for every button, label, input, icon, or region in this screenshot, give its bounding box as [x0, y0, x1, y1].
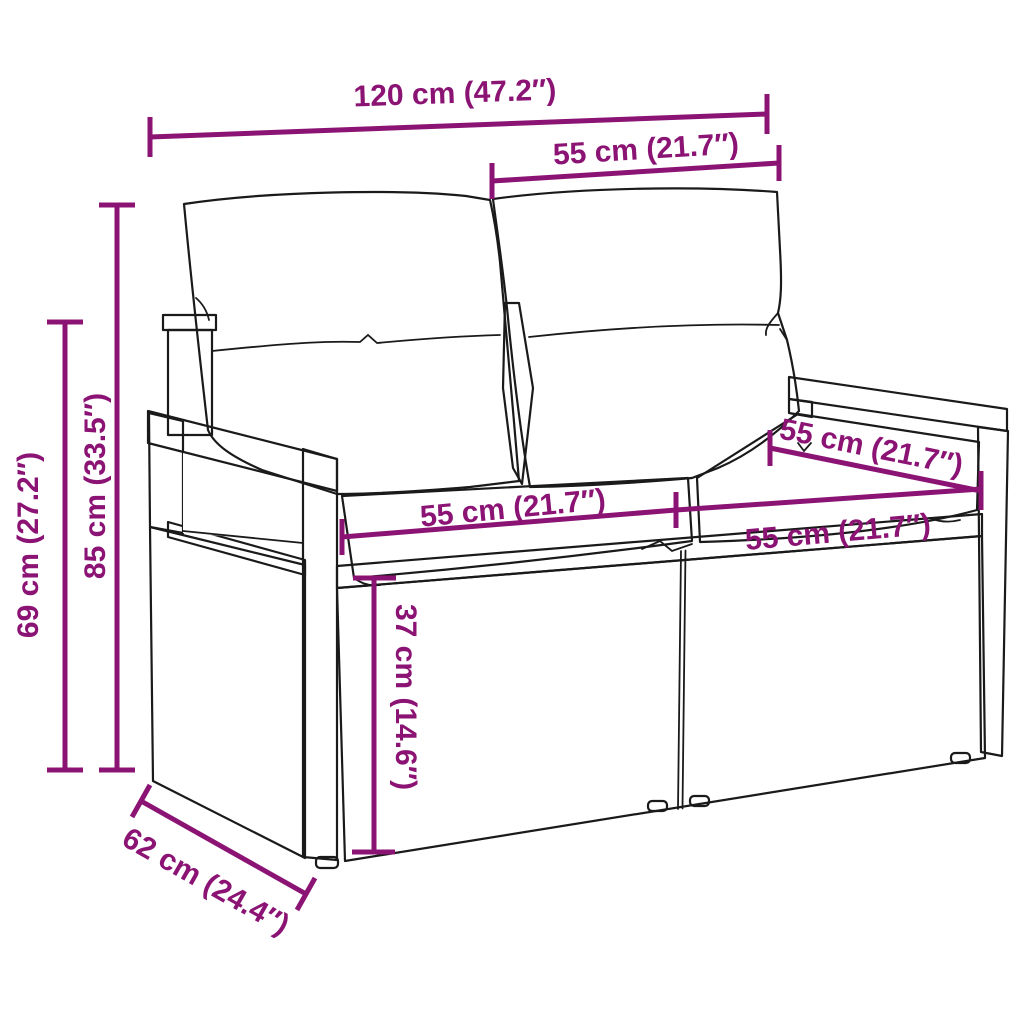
sofa-dimension-figure: 120 cm (47.2″) 55 cm (21.7″) 85 cm (33.5… — [0, 0, 1024, 1024]
dimension-label: 37 cm (14.6″) — [389, 604, 422, 790]
dimension-label: 69 cm (27.2″) — [12, 452, 45, 638]
dimension-label: 85 cm (33.5″) — [79, 393, 112, 579]
product-dimension-diagram: 120 cm (47.2″) 55 cm (21.7″) 85 cm (33.5… — [0, 0, 1024, 1024]
